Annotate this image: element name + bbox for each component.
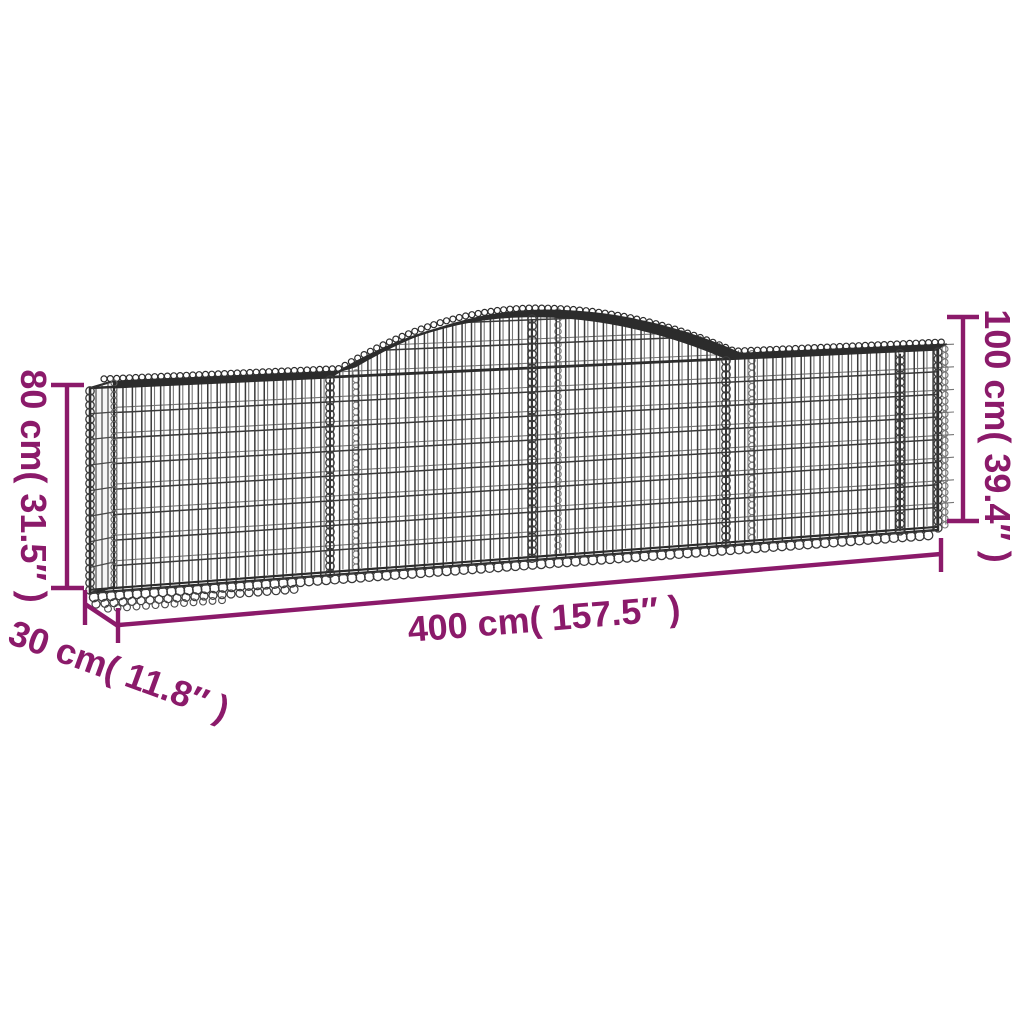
product-dimension-diagram: 80 cm( 31.5″ ) 100 cm( 39.4″ ) 400 cm( 1… bbox=[0, 0, 1024, 1024]
gabion-basket-drawing bbox=[0, 0, 1024, 1024]
height-right-label: 100 cm( 39.4″ ) bbox=[979, 309, 1015, 562]
depth-30-dimension-line bbox=[85, 604, 118, 626]
height-left-label: 80 cm( 31.5″ ) bbox=[15, 369, 51, 602]
